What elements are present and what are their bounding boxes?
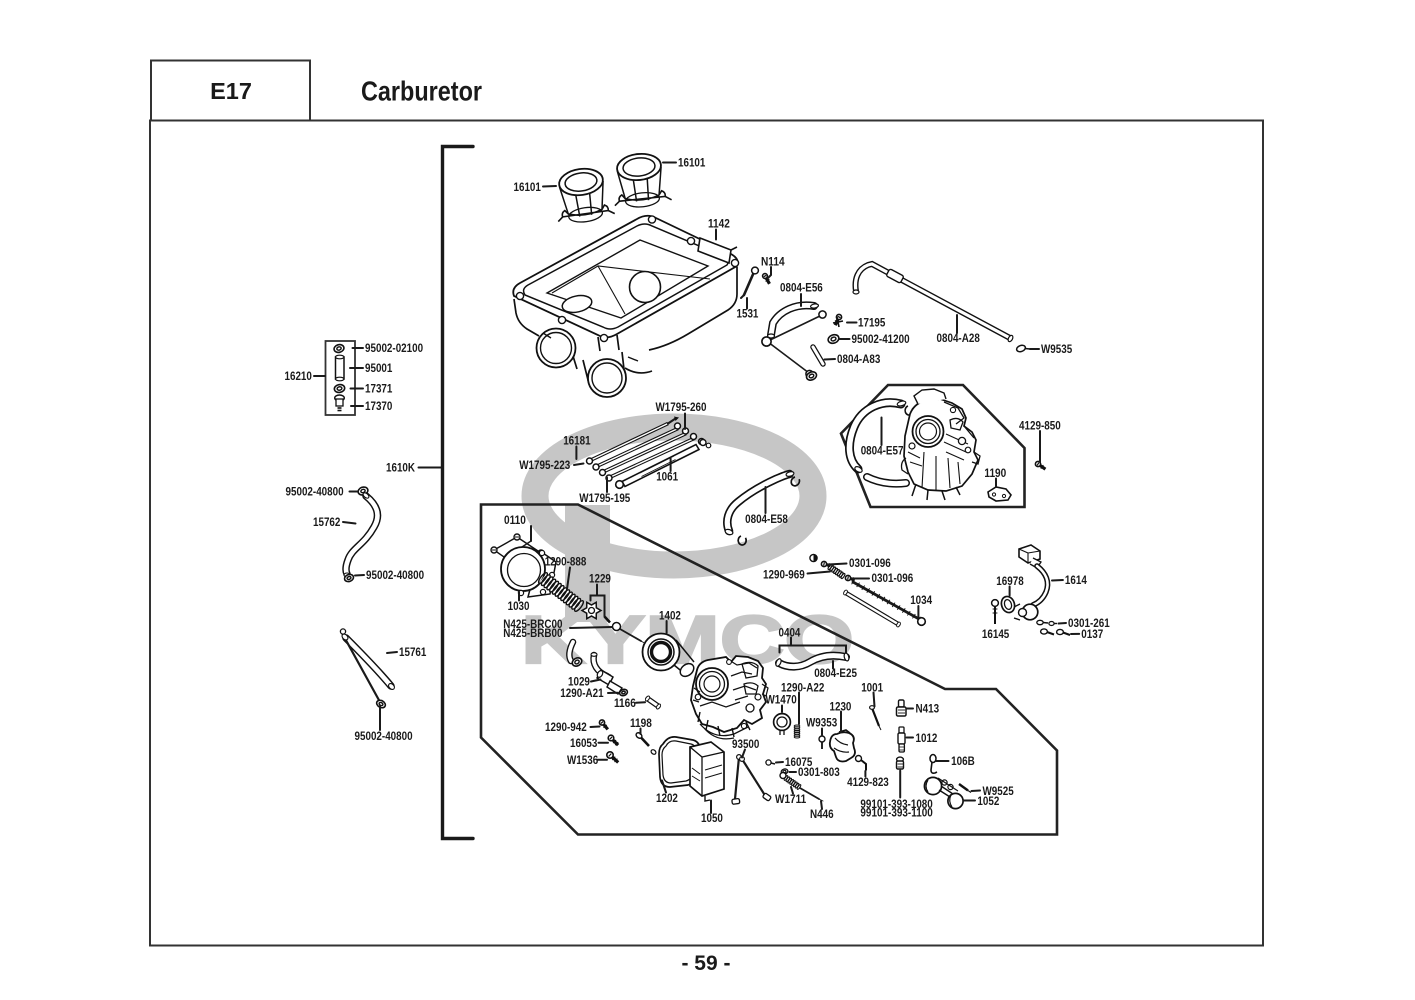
svg-text:16101: 16101 — [514, 181, 542, 194]
svg-text:0804-E25: 0804-E25 — [814, 667, 857, 680]
svg-text:0110: 0110 — [504, 514, 526, 527]
svg-text:1001: 1001 — [861, 682, 883, 695]
svg-text:4129-850: 4129-850 — [1019, 420, 1061, 433]
svg-text:4129-823: 4129-823 — [847, 776, 889, 789]
svg-text:106B: 106B — [951, 755, 975, 768]
svg-text:W9353: W9353 — [806, 717, 838, 730]
svg-text:1142: 1142 — [708, 218, 730, 231]
svg-text:N446: N446 — [810, 808, 834, 821]
svg-text:1402: 1402 — [659, 610, 681, 623]
svg-text:1229: 1229 — [589, 573, 611, 586]
svg-text:95002-02100: 95002-02100 — [365, 342, 423, 355]
svg-text:1610K: 1610K — [386, 462, 416, 475]
svg-text:1531: 1531 — [737, 308, 759, 321]
svg-text:0301-803: 0301-803 — [798, 766, 840, 779]
svg-text:16101: 16101 — [678, 157, 706, 170]
svg-text:15762: 15762 — [313, 516, 340, 529]
svg-text:0137: 0137 — [1081, 628, 1103, 641]
svg-text:17195: 17195 — [858, 317, 886, 330]
svg-text:1230: 1230 — [830, 700, 852, 713]
svg-text:0301-096: 0301-096 — [849, 557, 891, 570]
svg-text:17371: 17371 — [365, 383, 393, 396]
svg-text:N114: N114 — [761, 256, 785, 269]
svg-text:1290-888: 1290-888 — [545, 556, 587, 569]
svg-text:1052: 1052 — [977, 795, 999, 808]
svg-text:17370: 17370 — [365, 400, 392, 413]
svg-text:1290-969: 1290-969 — [763, 568, 805, 581]
svg-text:0804-A28: 0804-A28 — [937, 332, 981, 345]
svg-text:0404: 0404 — [779, 627, 801, 640]
svg-text:E17: E17 — [210, 78, 252, 104]
svg-text:W1536: W1536 — [567, 754, 599, 767]
svg-text:95002-41200: 95002-41200 — [852, 333, 910, 346]
svg-text:1190: 1190 — [984, 467, 1006, 480]
svg-text:- 59 -: - 59 - — [681, 952, 730, 975]
svg-text:16181: 16181 — [563, 435, 591, 448]
svg-text:0804-E57: 0804-E57 — [861, 445, 904, 458]
svg-text:W9535: W9535 — [1041, 343, 1073, 356]
svg-text:1290-A21: 1290-A21 — [560, 687, 604, 700]
svg-text:W1795-260: W1795-260 — [656, 401, 707, 414]
svg-text:95002-40800: 95002-40800 — [355, 730, 413, 743]
svg-text:16145: 16145 — [982, 628, 1010, 641]
svg-text:W1795-223: W1795-223 — [519, 459, 570, 472]
svg-text:1061: 1061 — [656, 471, 678, 484]
svg-text:1166: 1166 — [614, 697, 636, 710]
svg-text:1050: 1050 — [701, 812, 723, 825]
svg-text:1198: 1198 — [630, 717, 652, 730]
svg-text:16210: 16210 — [285, 370, 312, 383]
svg-text:0804-E56: 0804-E56 — [780, 282, 823, 295]
svg-text:1030: 1030 — [508, 600, 530, 613]
svg-text:0301-096: 0301-096 — [872, 572, 914, 585]
svg-text:0804-A83: 0804-A83 — [837, 353, 881, 366]
svg-text:Carburetor: Carburetor — [361, 76, 482, 107]
svg-text:95002-40800: 95002-40800 — [286, 486, 344, 499]
svg-text:95002-40800: 95002-40800 — [366, 569, 424, 582]
svg-text:1012: 1012 — [916, 732, 938, 745]
svg-text:16053: 16053 — [570, 737, 598, 750]
svg-text:N425-BRB00: N425-BRB00 — [503, 627, 562, 640]
svg-text:95001: 95001 — [365, 362, 393, 375]
svg-text:99101-393-1100: 99101-393-1100 — [860, 807, 932, 820]
svg-text:1290-942: 1290-942 — [545, 721, 587, 734]
svg-text:15761: 15761 — [399, 646, 427, 659]
svg-text:16978: 16978 — [996, 575, 1024, 588]
svg-text:93500: 93500 — [732, 738, 759, 751]
svg-text:W1795-195: W1795-195 — [579, 492, 630, 505]
svg-text:1034: 1034 — [910, 594, 932, 607]
svg-text:1202: 1202 — [656, 792, 678, 805]
svg-text:N413: N413 — [916, 703, 940, 716]
svg-text:0804-E58: 0804-E58 — [745, 513, 788, 526]
svg-text:W1711: W1711 — [775, 793, 807, 806]
svg-text:W1470: W1470 — [766, 694, 797, 707]
svg-text:1614: 1614 — [1065, 574, 1087, 587]
